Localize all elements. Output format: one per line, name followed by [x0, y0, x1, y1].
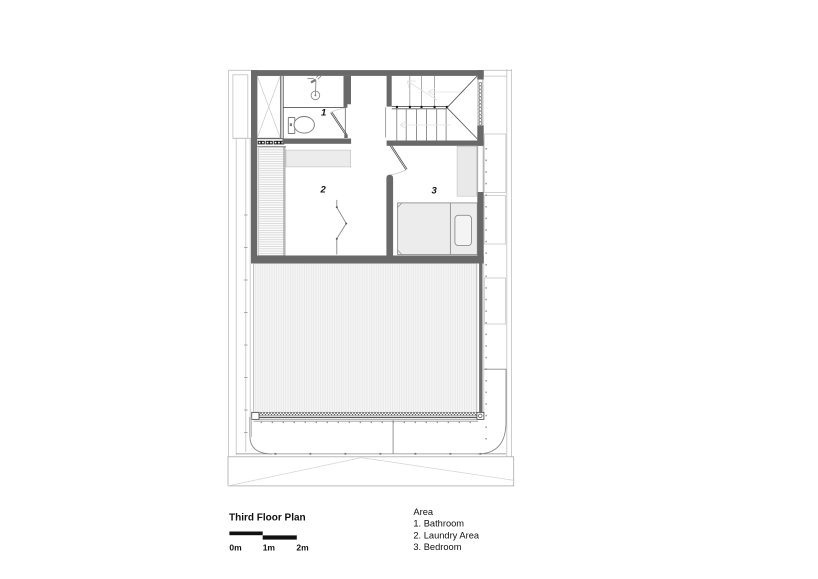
svg-text:2m: 2m — [296, 542, 309, 552]
svg-text:0m: 0m — [229, 542, 242, 552]
svg-text:2. Laundry Area: 2. Laundry Area — [413, 530, 479, 540]
svg-text:3. Bedroom: 3. Bedroom — [413, 542, 461, 552]
svg-text:1m: 1m — [263, 542, 276, 552]
svg-text:3: 3 — [432, 186, 438, 197]
svg-text:1. Bathroom: 1. Bathroom — [413, 519, 464, 529]
svg-text:Third Floor Plan: Third Floor Plan — [229, 513, 306, 524]
svg-text:1: 1 — [321, 107, 326, 118]
svg-text:2: 2 — [320, 184, 327, 195]
svg-text:Area: Area — [413, 507, 433, 517]
